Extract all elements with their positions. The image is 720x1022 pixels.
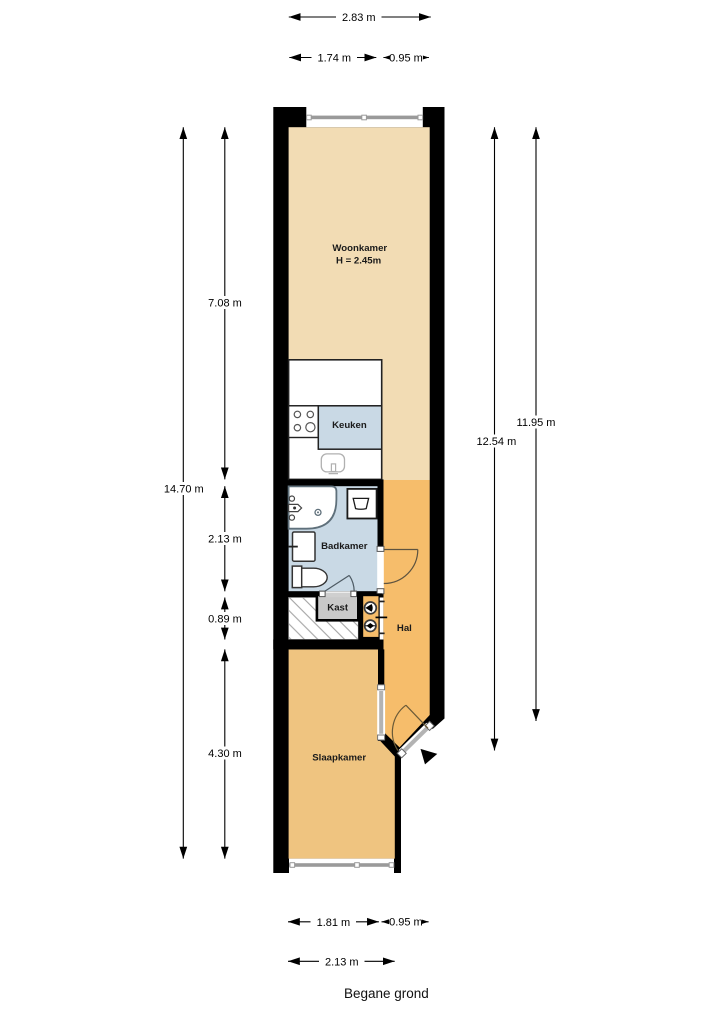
svg-text:Begane grond: Begane grond [344, 986, 429, 1001]
svg-text:0.95 m: 0.95 m [389, 917, 423, 929]
svg-text:Keuken: Keuken [332, 420, 367, 431]
svg-text:Woonkamer: Woonkamer [332, 243, 387, 254]
svg-text:1.81 m: 1.81 m [317, 917, 351, 929]
svg-text:11.95 m: 11.95 m [517, 417, 556, 429]
svg-text:Hal: Hal [397, 623, 412, 634]
svg-text:2.13 m: 2.13 m [208, 534, 242, 546]
svg-text:12.54 m: 12.54 m [477, 436, 517, 448]
svg-text:2.13 m: 2.13 m [325, 956, 359, 968]
svg-text:Kast: Kast [327, 603, 349, 614]
svg-text:7.08 m: 7.08 m [208, 298, 242, 310]
svg-text:14.70 m: 14.70 m [164, 484, 204, 496]
svg-text:Badkamer: Badkamer [321, 541, 368, 552]
svg-text:Slaapkamer: Slaapkamer [312, 752, 366, 763]
svg-text:4.30 m: 4.30 m [208, 748, 242, 760]
svg-text:0.95 m: 0.95 m [389, 53, 423, 65]
svg-text:2.83 m: 2.83 m [342, 12, 376, 24]
svg-text:H = 2.45m: H = 2.45m [336, 256, 381, 267]
svg-text:0.89 m: 0.89 m [208, 613, 242, 625]
svg-text:1.74 m: 1.74 m [317, 53, 351, 65]
